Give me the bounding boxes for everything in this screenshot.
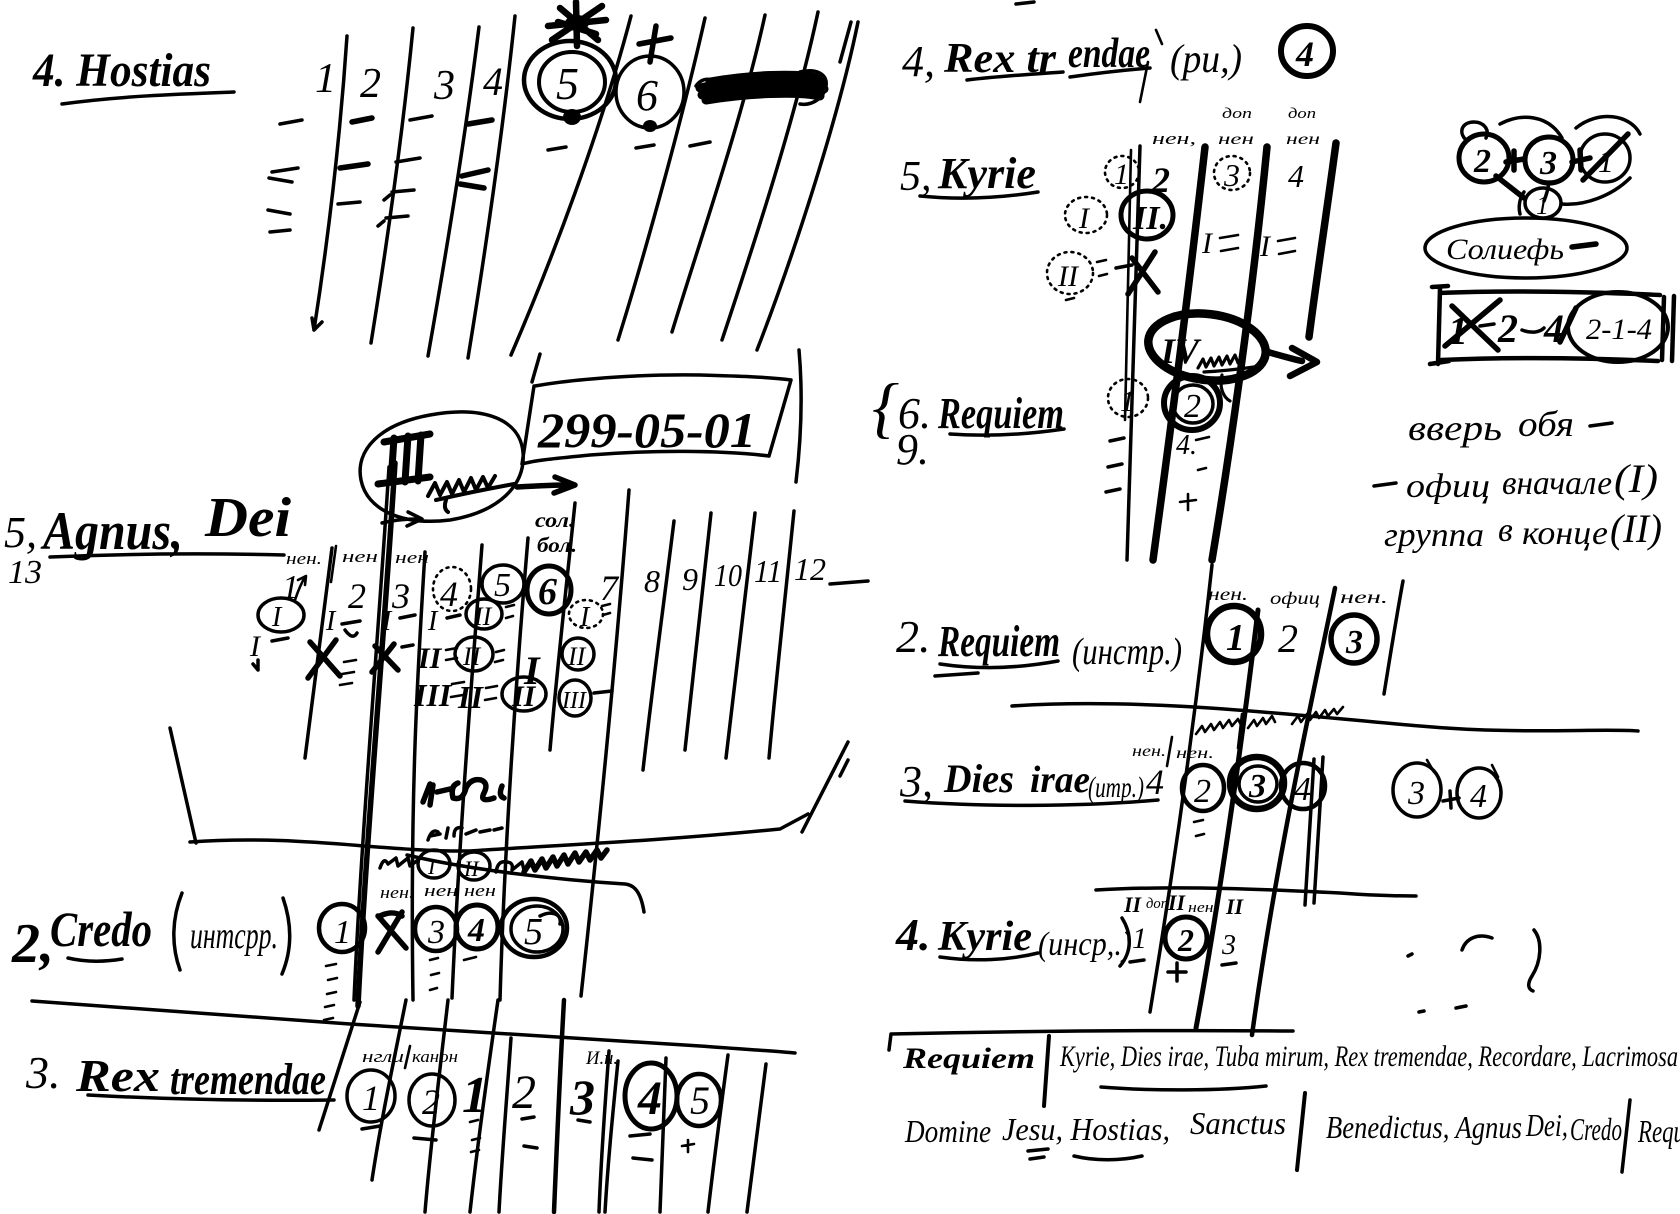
svg-text:(ри,): (ри,) [1170,36,1242,81]
svg-text:II: II [1225,894,1245,919]
svg-text:4. Hostias: 4. Hostias [32,44,211,97]
svg-text:3: 3 [433,63,455,109]
svg-text:3: 3 [1345,624,1363,661]
svg-text:(инср,.): (инср,.) [1038,926,1132,963]
svg-text:Jesu, Hostias,: Jesu, Hostias, [1002,1111,1170,1147]
svg-text:5: 5 [556,58,579,109]
svg-text:4.: 4. [1176,430,1197,461]
svg-text:5: 5 [494,567,511,604]
svg-text:нен: нен [1218,131,1254,148]
svg-text:II.: II. [1132,200,1168,237]
svg-text:нен: нен [342,547,378,566]
svg-text:3: 3 [569,1069,595,1125]
svg-text:IV: IV [1160,331,1202,371]
svg-text:II: II [462,642,482,671]
svg-text:3: 3 [1407,775,1425,812]
svg-text:I: I [271,602,283,633]
svg-text:доп: доп [1288,106,1316,122]
svg-text:1: 1 [1536,191,1549,220]
svg-text:3,: 3, [899,757,933,806]
svg-text:6: 6 [636,71,658,120]
svg-text:9: 9 [682,561,698,597]
svg-text:нен: нен [1286,131,1320,148]
svg-text:офиц: офиц [1406,468,1490,505]
svg-text:Benedictus, Agnus: Benedictus, Agnus [1326,1109,1522,1145]
svg-text:5: 5 [690,1078,710,1123]
svg-text:2: 2 [1184,388,1201,425]
svg-text:нен.: нен. [1340,587,1388,607]
svg-text:I: I [427,606,439,637]
svg-text:Kyrie, Dies irae, Tuba mirum,: Kyrie, Dies irae, Tuba mirum, Rex tremen… [1059,1040,1678,1073]
svg-text:Kyrie: Kyrie [937,149,1036,198]
svg-text:2.: 2. [896,611,931,662]
svg-text:3: 3 [427,914,445,951]
svg-text:4: 4 [1295,34,1314,74]
svg-text:офиц: офиц [1270,588,1320,608]
svg-text:4: 4 [1288,158,1304,194]
svg-text:(итр.): (итр.) [1088,771,1144,804]
svg-text:12: 12 [794,551,826,587]
svg-text:нен.: нен. [1208,584,1248,604]
svg-text:2-1-4: 2-1-4 [1586,313,1652,346]
svg-text:Dei: Dei [204,487,292,549]
svg-text:Солиефь: Солиефь [1446,233,1564,266]
svg-text:2: 2 [348,576,366,616]
svg-text:I: I [325,606,337,637]
svg-text:Requiem: Requiem [1637,1113,1680,1149]
svg-text:Domine: Domine [904,1113,991,1149]
svg-text:4: 4 [467,912,485,949]
svg-text:(инстр.): (инстр.) [1072,631,1182,673]
svg-text:irae: irae [1030,759,1090,801]
svg-text:III: III [561,688,587,714]
svg-text:2: 2 [1497,306,1518,351]
svg-text:нен.: нен. [1188,900,1218,916]
svg-text:II: II [1123,892,1143,917]
svg-text:2: 2 [1177,922,1194,958]
svg-text:2: 2 [1278,616,1298,661]
svg-text:1: 1 [1226,617,1245,659]
svg-text:3: 3 [1221,930,1236,961]
svg-text:II: II [567,642,587,671]
svg-text:нен: нен [424,881,458,900]
svg-text:канон: канон [412,1047,458,1066]
svg-text:4: 4 [1470,778,1487,815]
svg-text:II: II [473,602,493,631]
svg-text:2,: 2, [11,913,54,975]
svg-text:II: II [417,642,443,675]
svg-text:в: в [1498,512,1513,549]
svg-text:(I): (I) [1614,456,1658,501]
svg-text:II: II [1057,260,1080,293]
svg-text:доп: доп [1222,106,1252,122]
svg-text:tremendae: tremendae [170,1055,326,1104]
svg-text:вначале: вначале [1502,465,1612,502]
svg-text:нен.: нен. [1176,745,1214,762]
svg-text:1: 1 [1120,385,1135,418]
svg-text:Credo: Credo [50,901,152,957]
svg-text:3.: 3. [25,1047,61,1098]
svg-text:(II): (II) [1610,506,1662,551]
svg-text:нен.: нен. [380,883,414,902]
svg-text:4.: 4. [895,909,931,960]
svg-text:Agnus,: Agnus, [40,501,183,561]
svg-text:2: 2 [360,61,381,107]
svg-text:III: III [413,677,453,713]
svg-text:4: 4 [1146,762,1164,802]
svg-text:1: 1 [315,56,336,102]
svg-text:Credo: Credo [1570,1111,1622,1147]
svg-text:299-05-01: 299-05-01 [537,402,756,458]
svg-text:13: 13 [8,554,42,591]
svg-text:II: II [457,679,484,715]
svg-text:3: 3 [1223,157,1240,193]
svg-text:1: 1 [1114,158,1129,191]
svg-text:4,: 4, [902,37,935,86]
svg-text:2: 2 [1194,773,1211,810]
svg-text:2: 2 [1473,143,1491,180]
svg-text:Requiem: Requiem [902,1042,1035,1075]
svg-text:5,: 5, [900,154,932,200]
svg-text:И.н.: И.н. [585,1048,618,1069]
svg-text:8: 8 [644,563,660,599]
svg-text:нен.: нен. [1132,743,1166,760]
svg-text:9.: 9. [896,425,929,474]
svg-text:нен.: нен. [286,549,322,568]
svg-text:11: 11 [754,553,782,589]
svg-text:нен,: нен, [1152,129,1196,148]
svg-text:7: 7 [600,568,620,608]
svg-text:обя: обя [1518,404,1574,444]
svg-text:Requiem: Requiem [937,617,1060,666]
svg-text:Kyrie: Kyrie [937,914,1032,960]
svg-text:4: 4 [483,59,503,104]
svg-text:I: I [579,602,591,633]
svg-text:Dies: Dies [943,756,1014,801]
svg-text:10: 10 [714,557,742,593]
svg-text:4: 4 [637,1072,662,1125]
svg-text:I: I [381,606,393,637]
svg-text:3: 3 [1248,768,1266,805]
svg-text:II: II [463,856,480,881]
svg-text:нен: нен [464,881,496,900]
svg-text:сол.: сол. [535,508,575,532]
svg-text:2: 2 [512,1066,536,1119]
svg-text:Sanctus: Sanctus [1190,1105,1286,1141]
svg-text:конце: конце [1522,515,1608,552]
svg-text:Dei,: Dei, [1525,1107,1568,1143]
svg-text:3: 3 [391,576,410,616]
svg-text:1: 1 [1132,922,1147,955]
svg-text:1: 1 [362,1078,380,1118]
svg-text:6: 6 [538,571,557,613]
svg-text:интсрр.: интсрр. [190,915,278,957]
svg-text:3: 3 [1539,145,1557,182]
svg-text:II: II [1167,890,1187,915]
svg-text:группа: группа [1384,517,1484,554]
svg-text:4: 4 [1294,771,1311,808]
svg-text:1: 1 [334,914,351,951]
svg-text:II: II [511,680,537,713]
svg-text:доп: доп [1146,896,1168,912]
svg-text:5,: 5, [4,508,37,557]
svg-text:вверь: вверь [1408,408,1502,448]
